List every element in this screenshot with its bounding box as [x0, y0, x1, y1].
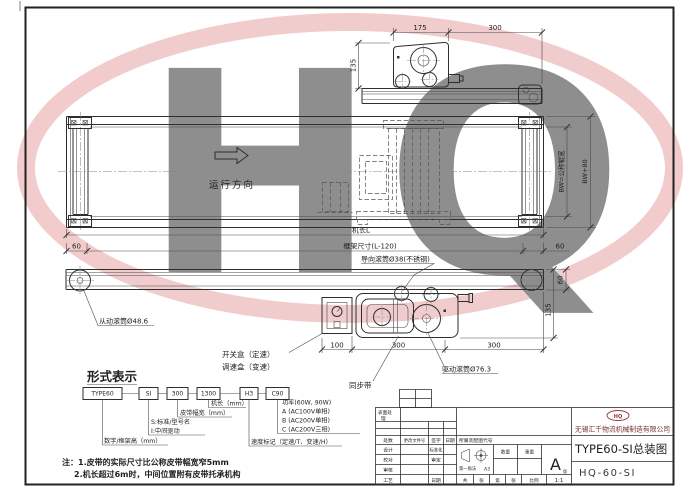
company-name: 无锡汇千物流机械制造有限公司	[575, 425, 670, 434]
weight-label: 重量	[525, 449, 535, 456]
assembly-code-label: 所属装配图代号	[459, 437, 493, 444]
legend-belt-width: 皮带幅宽（mm）	[180, 409, 229, 417]
label-drive-roller: 驱动滚筒Ø76.3	[442, 365, 491, 374]
code-power: C90	[272, 391, 284, 398]
projection-label: 第一角法	[459, 465, 477, 472]
legend-s-label: S:标准/型号名	[151, 418, 190, 426]
legend-power-c: C (AC200V三相)	[282, 426, 330, 434]
review-label: 审核	[383, 467, 393, 474]
dim-60-vert: 60	[557, 276, 565, 285]
legend-power-b: B (AC200V单相)	[282, 417, 330, 425]
surface-label-1: 表面处	[378, 409, 392, 416]
logo-text: HQ	[614, 414, 622, 420]
drawing-title: TYPE60-SI总装图	[574, 442, 667, 456]
label-sync-belt: 同步带	[349, 381, 372, 390]
revision-mini-table	[400, 390, 432, 408]
model-legend: 形式表示 TYPE60 SI 300 1300 H3 C90 数字/框架高（mm…	[83, 369, 360, 446]
sheets-total-label: 共	[463, 477, 468, 484]
label-guide-roller: 导向滚筒Ø38(不锈钢)	[361, 255, 430, 264]
process-label: 工艺	[383, 478, 393, 484]
legend-power-a: A (AC100V单相)	[282, 408, 330, 416]
approve-label: 审定	[431, 457, 441, 464]
code-speed: H3	[245, 391, 254, 398]
proofread-label: 校对	[383, 457, 393, 464]
dim-300-top: 300	[488, 24, 501, 32]
legend-machine-length: 机长（mm）	[211, 400, 248, 408]
rev-date-label: 日期	[445, 438, 455, 444]
legend-power-title: 功率(60W, 90W)	[282, 399, 331, 407]
notes: 注：1.皮带的实际尺寸比公称皮带幅宽窄5mm 2.机长超过6m时，中间位置附有皮…	[62, 457, 241, 479]
dim-135-right: 135	[545, 303, 553, 316]
scale-value: 1:1	[555, 478, 564, 484]
dim-175: 175	[413, 24, 426, 32]
version-letter: A	[550, 455, 561, 474]
code-length: 1300	[201, 391, 216, 398]
code-si: SI	[146, 391, 152, 398]
dim-300-mid: 300	[392, 342, 405, 350]
assembly-drawing: HQ 175 300 135	[0, 0, 700, 495]
note-line-2: 2.机长超过6m时，中间位置附有皮带托承机构	[74, 469, 241, 479]
label-driven-roller: 从动滚筒Ø48.6	[99, 317, 149, 326]
label-speed-box: 调速盒（变速）	[222, 362, 275, 372]
surface-label-2: 理	[381, 416, 386, 422]
legend-title: 形式表示	[87, 369, 138, 384]
note-line-1: 注：1.皮带的实际尺寸比公称皮带幅宽窄5mm	[62, 457, 229, 467]
legend-i-label: I:中间驱动	[151, 427, 180, 435]
drawing-page: HQ 175 300 135	[0, 0, 700, 495]
first-angle-projection-icon	[462, 449, 489, 463]
rev-count-label: 处数	[383, 437, 393, 444]
dim-bw-outer: BW+80	[581, 159, 589, 183]
dim-100: 100	[330, 342, 343, 350]
scale-label: 比例	[529, 477, 539, 484]
dim-machine-length: 机长L	[352, 226, 370, 235]
dim-bw-inner: BW=公称辊宽	[557, 150, 566, 193]
date-label: 日期	[431, 478, 441, 484]
sheets-no-label: 第	[495, 477, 500, 484]
label-switch-box: 开关盒（定速）	[222, 349, 275, 359]
direction-label: 运行方向	[209, 179, 255, 191]
dim-135-top: 135	[350, 59, 358, 72]
version-suffix: 版	[563, 468, 567, 474]
legend-speed-mark: 速度标记（定速/T、变速/H）	[251, 438, 332, 446]
sheets-unit-1: 张	[479, 477, 484, 484]
dim-60-left: 60	[72, 243, 81, 251]
sheets-unit-2: 张	[511, 477, 516, 484]
dim-60-right: 60	[556, 243, 565, 251]
code-width: 300	[172, 391, 184, 398]
dim-frame-size: 框架尺寸(L-120)	[343, 242, 396, 251]
qty-label: 数量	[501, 449, 511, 456]
standardize-label: 标准化	[430, 447, 444, 454]
bearing-block	[69, 118, 92, 129]
code-type: TYPE60	[90, 391, 114, 398]
design-label: 设计	[383, 447, 393, 454]
bearing-block	[69, 216, 92, 227]
title-block: 表面处 理 处数 更改文件号 签字 日期 设计 标准化 校对 审定 审核 工艺 …	[376, 390, 674, 485]
dim-300-right: 300	[487, 342, 500, 350]
drawing-number: HQ-60-SI	[579, 468, 636, 479]
rev-doc-label: 更改文件号	[404, 437, 425, 444]
sheet-size: A3	[484, 467, 490, 473]
rev-sign-label: 签字	[431, 437, 441, 444]
legend-frame-height: 数字/框架高（mm）	[104, 437, 161, 445]
